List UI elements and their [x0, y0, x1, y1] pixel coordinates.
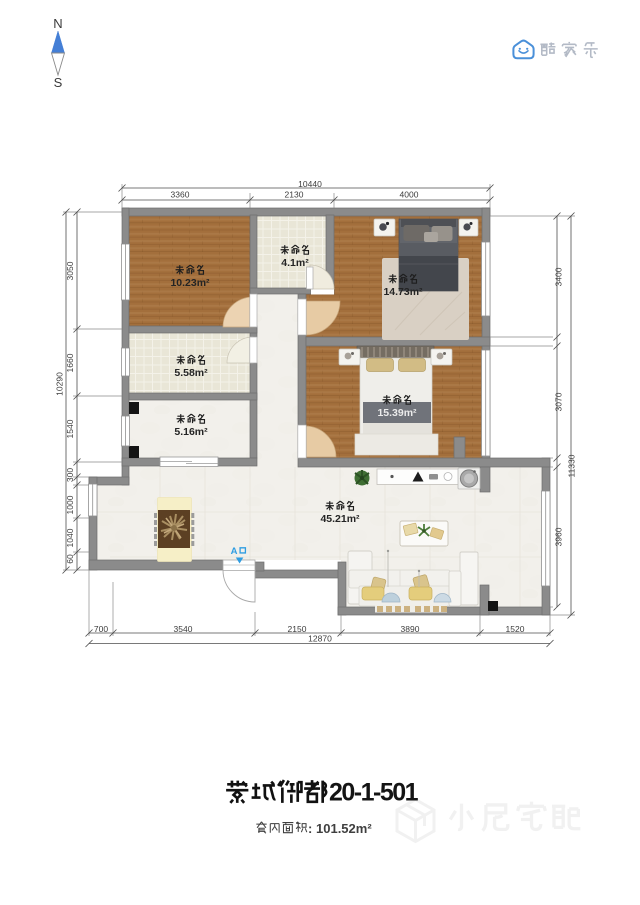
svg-text:2150: 2150: [288, 624, 307, 634]
svg-text:15.39m²: 15.39m²: [377, 407, 417, 419]
svg-text:3050: 3050: [65, 261, 75, 280]
svg-text:4000: 4000: [400, 190, 419, 200]
svg-text::: :: [308, 821, 312, 836]
svg-text:1660: 1660: [65, 353, 75, 372]
svg-text:3360: 3360: [171, 190, 190, 200]
svg-text:10440: 10440: [298, 179, 322, 189]
svg-text:3960: 3960: [554, 527, 564, 546]
svg-text:4.1m²: 4.1m²: [281, 257, 309, 269]
svg-text:60: 60: [65, 554, 75, 564]
svg-text:45.21m²: 45.21m²: [320, 513, 360, 525]
svg-text:1520: 1520: [506, 624, 525, 634]
svg-text:5.58m²: 5.58m²: [174, 367, 208, 379]
svg-text:20-1-501: 20-1-501: [329, 779, 419, 807]
svg-text:300: 300: [65, 468, 75, 482]
svg-text:12870: 12870: [308, 634, 332, 644]
svg-text:1540: 1540: [65, 419, 75, 438]
svg-text:S: S: [54, 75, 63, 90]
svg-text:A: A: [231, 546, 238, 557]
svg-text:1000: 1000: [65, 495, 75, 514]
svg-text:2130: 2130: [285, 190, 304, 200]
svg-text:700: 700: [94, 624, 108, 634]
svg-text:101.52m²: 101.52m²: [316, 821, 372, 836]
svg-text:10290: 10290: [55, 372, 65, 396]
svg-text:5.16m²: 5.16m²: [174, 426, 208, 438]
svg-text:10.23m²: 10.23m²: [170, 277, 210, 289]
svg-text:11330: 11330: [567, 454, 577, 477]
svg-text:N: N: [53, 16, 62, 31]
svg-text:3070: 3070: [554, 392, 564, 411]
svg-text:3540: 3540: [174, 624, 193, 634]
svg-text:3400: 3400: [554, 267, 564, 286]
svg-text:14.73m²: 14.73m²: [383, 286, 423, 298]
svg-text:3890: 3890: [401, 624, 420, 634]
svg-text:1040: 1040: [65, 528, 75, 547]
